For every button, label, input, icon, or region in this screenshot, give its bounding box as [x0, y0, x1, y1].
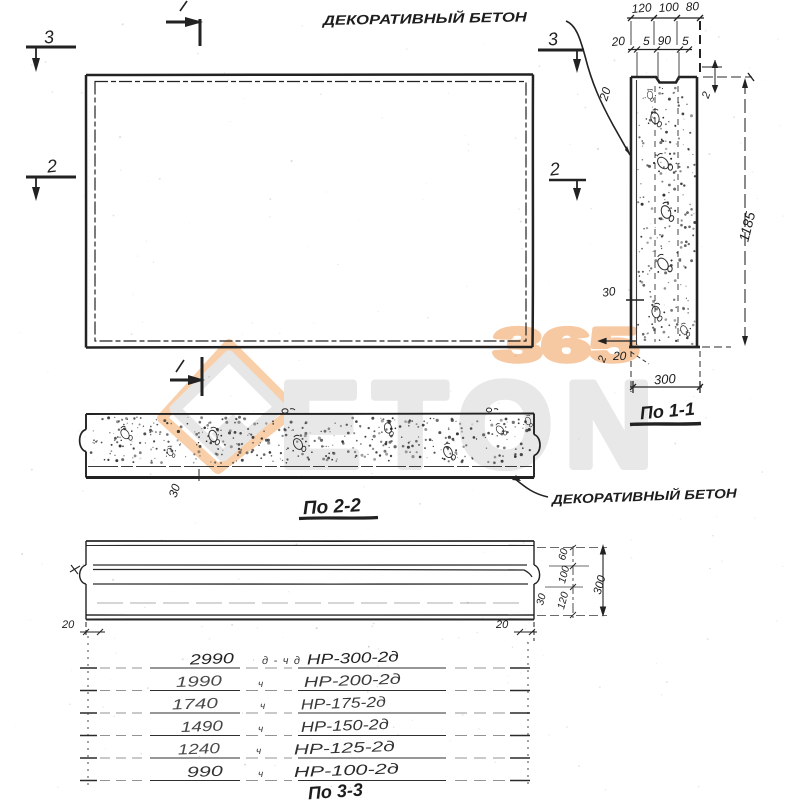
svg-text:НР-200-2д: НР-200-2д [304, 672, 401, 691]
svg-text:ч: ч [258, 769, 263, 780]
svg-text:3: 3 [547, 29, 559, 50]
svg-text:90: 90 [657, 33, 672, 48]
svg-text:100: 100 [658, 0, 679, 15]
svg-text:1990: 1990 [176, 673, 223, 691]
svg-text:ч: ч [256, 746, 261, 757]
svg-text:3: 3 [43, 27, 55, 48]
svg-text:ч: ч [258, 724, 263, 735]
svg-text:20: 20 [61, 619, 75, 631]
svg-text:ч: ч [260, 701, 265, 712]
svg-text:ETON: ETON [280, 358, 652, 492]
svg-text:2990: 2990 [188, 651, 234, 669]
svg-text:20: 20 [495, 619, 509, 631]
svg-text:5: 5 [643, 34, 650, 48]
svg-text:ч: ч [258, 679, 263, 690]
svg-text:300: 300 [653, 371, 676, 388]
svg-text:80: 80 [685, 0, 700, 14]
svg-text:2: 2 [548, 159, 561, 180]
svg-text:1740: 1740 [172, 696, 219, 714]
svg-text:2: 2 [45, 156, 58, 177]
svg-text:990: 990 [187, 764, 224, 781]
svg-text:20: 20 [612, 349, 627, 363]
svg-text:1490: 1490 [181, 719, 224, 736]
svg-text:20: 20 [610, 34, 626, 49]
svg-text:365: 365 [494, 318, 638, 371]
svg-text:5: 5 [682, 34, 689, 48]
svg-text:НР-150-2д: НР-150-2д [301, 717, 390, 736]
svg-text:30: 30 [601, 284, 616, 300]
svg-text:120: 120 [631, 0, 652, 16]
svg-text:По 2-2: По 2-2 [302, 495, 361, 519]
svg-text:НР-175-2д: НР-175-2д [301, 695, 387, 714]
svg-text:1240: 1240 [178, 741, 221, 758]
svg-text:По 3-3: По 3-3 [307, 780, 363, 800]
svg-text:НР-300-2д: НР-300-2д [307, 649, 400, 668]
